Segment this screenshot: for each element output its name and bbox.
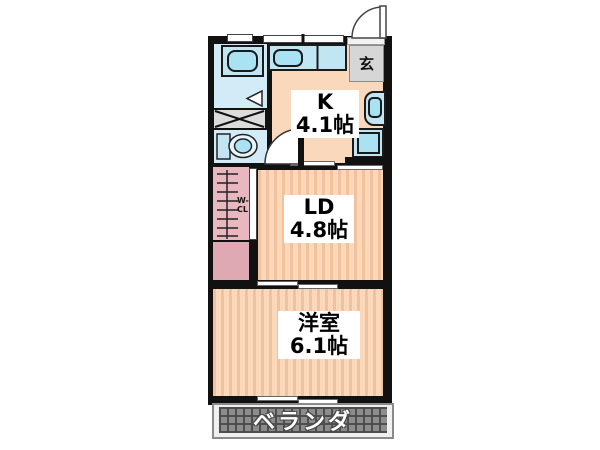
sliding-door-panel — [257, 281, 298, 286]
kitchen-area: 4.1帖 — [295, 114, 355, 137]
western-room-name: 洋室 — [282, 312, 356, 335]
washing-machine-inner — [357, 132, 380, 154]
kitchen-name: K — [295, 91, 355, 114]
floor-plan: 玄 W- CL ベランダ — [0, 0, 600, 450]
closet-label: W- CL — [237, 196, 249, 214]
kitchen-window — [263, 35, 344, 43]
wash-basin-bowl — [368, 97, 382, 118]
entrance-step — [347, 37, 385, 45]
living-dining-label: LD 4.8帖 — [284, 195, 354, 243]
veranda-area: ベランダ — [219, 407, 387, 433]
toilet-room-floor — [214, 130, 267, 163]
sliding-door-panel — [290, 161, 335, 166]
door-swing-icon — [352, 6, 386, 38]
western-room-area: 6.1帖 — [282, 335, 356, 358]
veranda-label: ベランダ — [253, 404, 353, 436]
closet-label-line1: W- — [237, 196, 249, 205]
sliding-door-panel — [298, 284, 338, 289]
closet-label-line2: CL — [237, 205, 249, 214]
western-room-label: 洋室 6.1帖 — [278, 311, 360, 359]
cross-box-icon — [214, 110, 265, 128]
bath-window — [227, 34, 253, 42]
sliding-door-panel — [337, 165, 383, 170]
sliding-door-vertical — [249, 168, 257, 240]
kitchen-sink-icon — [273, 49, 303, 67]
closet-lower-area — [213, 242, 249, 280]
entrance-label: 玄 — [359, 53, 374, 74]
entrance-area: 玄 — [349, 45, 384, 82]
living-dining-name: LD — [288, 196, 350, 219]
kitchen-label: K 4.1帖 — [291, 90, 359, 138]
veranda-window-panel — [257, 396, 298, 401]
bathtub-inner — [227, 50, 258, 72]
living-dining-area: 4.8帖 — [288, 219, 350, 242]
